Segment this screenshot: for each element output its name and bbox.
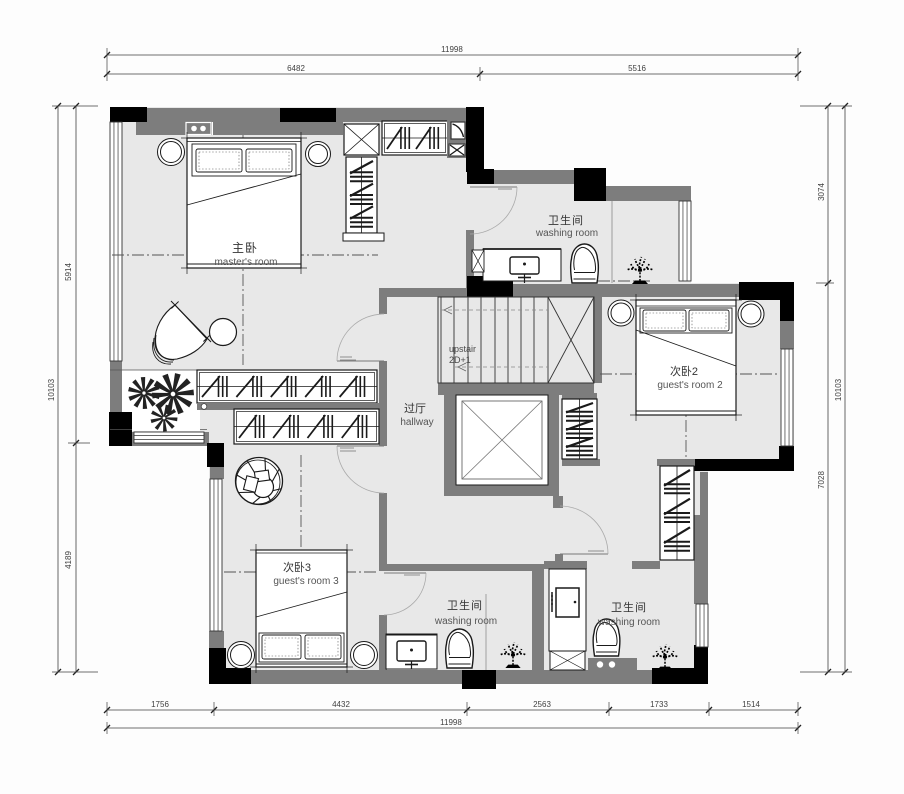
- svg-text:卫生间: 卫生间: [611, 600, 647, 614]
- svg-text:washing room: washing room: [434, 616, 497, 627]
- svg-text:guest's room 2: guest's room 2: [657, 380, 723, 391]
- svg-text:hallway: hallway: [400, 417, 433, 428]
- svg-text:3074: 3074: [817, 183, 826, 201]
- svg-text:次卧3: 次卧3: [283, 560, 311, 574]
- svg-text:washing room: washing room: [597, 617, 660, 628]
- svg-text:upstair: upstair: [449, 344, 476, 354]
- svg-text:卫生间: 卫生间: [548, 213, 584, 227]
- svg-text:1514: 1514: [742, 700, 760, 709]
- svg-text:1733: 1733: [650, 700, 668, 709]
- svg-text:washing room: washing room: [535, 228, 598, 239]
- svg-text:11998: 11998: [441, 45, 463, 54]
- svg-text:master's room: master's room: [214, 257, 277, 268]
- svg-text:5516: 5516: [628, 64, 646, 73]
- svg-text:guest's room 3: guest's room 3: [273, 576, 339, 587]
- svg-text:1756: 1756: [151, 700, 169, 709]
- svg-text:2D+1: 2D+1: [449, 355, 471, 365]
- svg-text:7028: 7028: [817, 471, 826, 489]
- svg-text:11998: 11998: [440, 718, 462, 727]
- svg-text:4432: 4432: [332, 700, 350, 709]
- svg-text:2563: 2563: [533, 700, 551, 709]
- svg-text:主卧: 主卧: [232, 241, 258, 255]
- svg-text:10103: 10103: [834, 378, 843, 401]
- svg-text:10103: 10103: [47, 378, 56, 401]
- svg-text:过厅: 过厅: [404, 402, 426, 415]
- svg-text:卫生间: 卫生间: [447, 598, 483, 612]
- svg-text:4189: 4189: [64, 551, 73, 569]
- svg-text:5914: 5914: [64, 263, 73, 281]
- svg-text:次卧2: 次卧2: [670, 364, 698, 378]
- svg-text:6482: 6482: [287, 64, 305, 73]
